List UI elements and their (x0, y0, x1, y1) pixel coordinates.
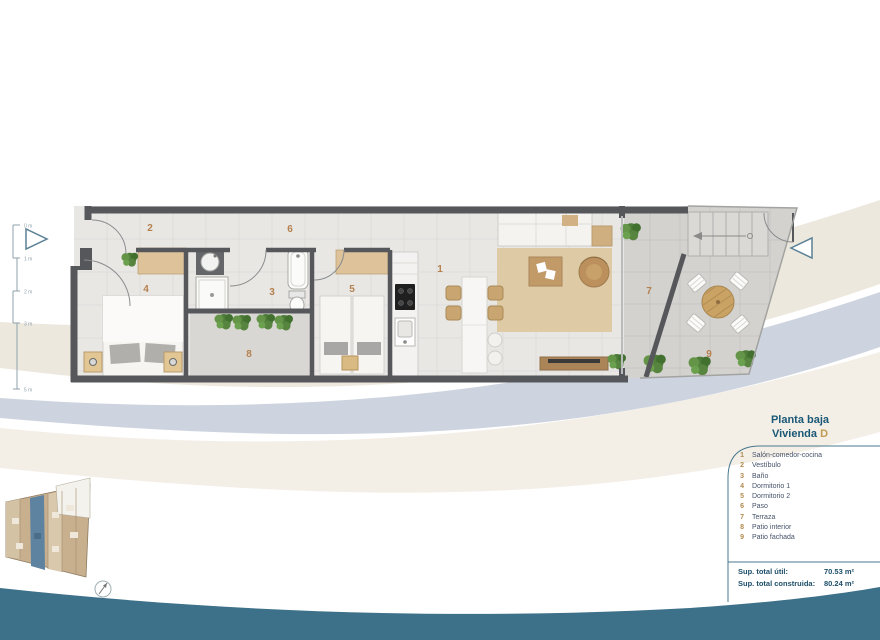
scale-label: 3 m (24, 322, 32, 328)
room-label-1: 1 (437, 264, 443, 275)
legend-item: 7Terraza (728, 513, 878, 523)
entrance-arrow-left-icon (26, 229, 47, 249)
surface-totals: Sup. total útil: 70.53 m² Sup. total con… (728, 566, 880, 590)
bed-bench (342, 356, 358, 370)
room-label-2: 2 (147, 223, 153, 234)
stool (488, 333, 502, 347)
armchair (579, 257, 609, 287)
legend-item: 9Patio fachada (728, 533, 878, 543)
total-built-row: Sup. total construida: 80.24 m² (738, 578, 854, 590)
panel-titles: Planta baja Vivienda D (700, 413, 880, 441)
legend-item: 1Salón-comedor-cocina (728, 451, 878, 461)
coffee-table (529, 257, 562, 286)
sofa-cushion (562, 215, 578, 226)
kitchen-counter (392, 252, 418, 377)
legend-item: 6Paso (728, 502, 878, 512)
highlighted-unit (30, 495, 45, 570)
building-thumbnail (6, 478, 90, 577)
stairs (688, 212, 768, 256)
dining-chair (488, 306, 503, 320)
ottoman (592, 226, 612, 246)
floorplan-canvas: 1 2 3 4 5 6 7 8 9 0 m 1 m 2 m 3 m 5 m (0, 0, 880, 640)
scale-label: 1 m (24, 257, 32, 263)
compass-icon (95, 581, 111, 597)
stool (488, 351, 502, 365)
legend-item: 5Dormitorio 2 (728, 492, 878, 502)
total-useful-row: Sup. total útil: 70.53 m² (738, 566, 854, 578)
patio-interior-floor (190, 313, 312, 380)
total-built-label: Sup. total construida: (738, 578, 815, 590)
pillow (324, 342, 348, 355)
legend-item: 4Dormitorio 1 (728, 482, 878, 492)
total-useful-label: Sup. total útil: (738, 566, 788, 578)
legend-item: 3Baño (728, 472, 878, 482)
room-label-3: 3 (269, 287, 275, 298)
total-useful-value: 70.53 m² (824, 566, 854, 578)
room-label-5: 5 (349, 284, 355, 295)
cooktop (395, 284, 415, 310)
tv-sideboard (540, 357, 608, 370)
scale-label: 2 m (24, 290, 32, 296)
bottom-wave (0, 587, 880, 640)
legend-item: 2Vestíbulo (728, 461, 878, 471)
scale-label: 5 m (24, 388, 32, 394)
plan-title: Planta baja (700, 413, 880, 427)
pillow (109, 343, 140, 364)
room-label-7: 7 (646, 286, 652, 297)
dining-chair (446, 286, 461, 300)
legend-item: 8Patio interior (728, 523, 878, 533)
lamp (170, 359, 177, 366)
floor-plan: 1 2 3 4 5 6 7 8 9 0 m 1 m 2 m 3 m 5 m (13, 206, 812, 394)
lamp (90, 359, 97, 366)
room-label-4: 4 (143, 284, 149, 295)
pillow (357, 342, 381, 355)
room-label-8: 8 (246, 349, 252, 360)
dining-chair (488, 286, 503, 300)
room-legend: 1Salón-comedor-cocina 2Vestíbulo 3Baño 4… (728, 451, 878, 544)
unit-title: Vivienda D (700, 427, 880, 441)
room-label-9: 9 (706, 349, 712, 360)
dining-chair (446, 306, 461, 320)
scale-label: 0 m (24, 224, 32, 230)
unit-letter: D (820, 428, 828, 440)
room-label-6: 6 (287, 224, 293, 235)
duvet (103, 296, 183, 342)
total-built-value: 80.24 m² (824, 578, 854, 590)
